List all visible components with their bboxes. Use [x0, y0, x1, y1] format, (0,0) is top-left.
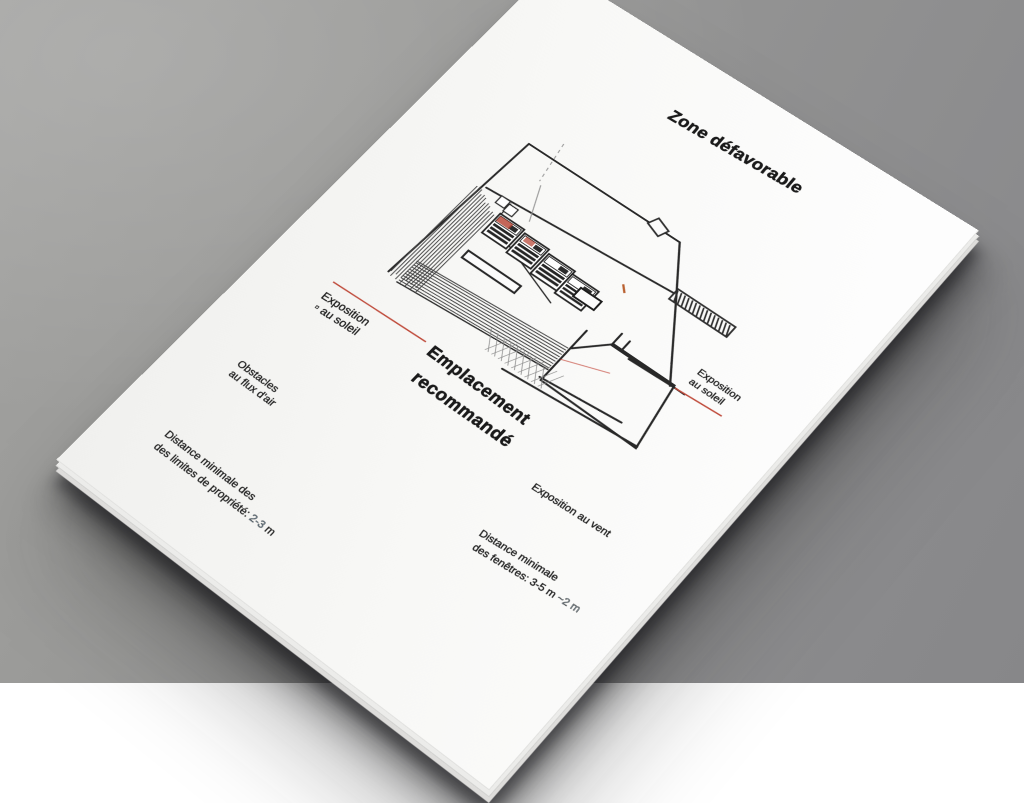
- svg-text:Exposition au vent: Exposition au vent: [529, 481, 613, 539]
- svg-text:Zone défavorable: Zone défavorable: [664, 107, 807, 197]
- svg-text:des limites de propriété: 2-3: des limites de propriété: 2-3 m: [151, 441, 278, 539]
